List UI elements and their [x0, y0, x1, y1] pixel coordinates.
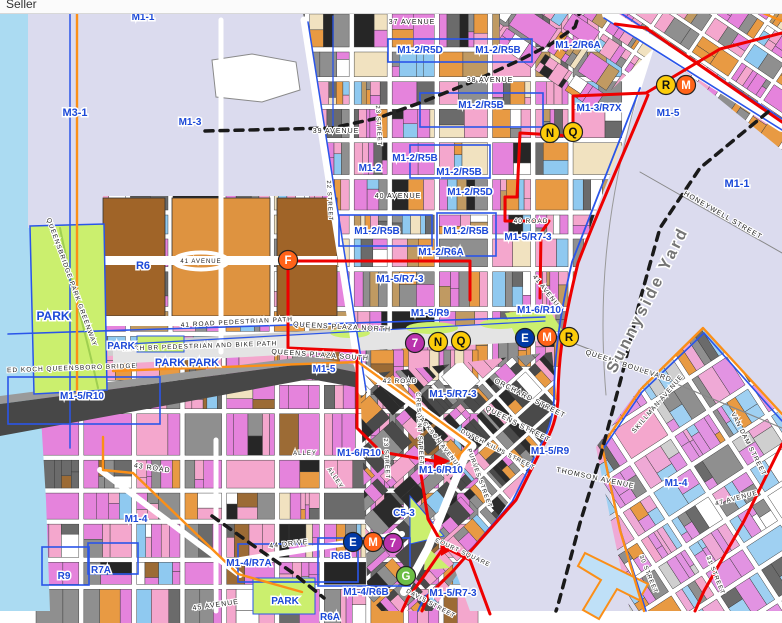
zone-label: R6A	[320, 612, 340, 623]
svg-text:E: E	[349, 537, 357, 549]
subway-marker-M[interactable]: M	[538, 328, 557, 347]
svg-text:R: R	[565, 332, 574, 344]
subway-marker-N[interactable]: N	[541, 124, 560, 143]
zone-label: M1-5/R9	[531, 446, 570, 457]
zone-label: M1-2	[359, 163, 382, 174]
zone-label: M1-5/R10	[60, 391, 104, 402]
zone-label: M3-1	[62, 107, 87, 119]
zone-label: C5-3	[393, 508, 415, 519]
subway-marker-Q[interactable]: Q	[564, 123, 583, 142]
street-label: 38 AVENUE	[467, 77, 514, 84]
svg-text:E: E	[521, 333, 529, 345]
svg-text:7: 7	[412, 338, 418, 350]
street-label: 42 ROAD	[383, 378, 418, 385]
street-label: 41 AVENUE	[180, 259, 221, 265]
street-label: 40 ROAD	[514, 218, 549, 225]
zone-label: M1-2/R5B	[436, 167, 482, 178]
zone-label: M1-5/R7-3	[504, 232, 552, 243]
zone-label: M1-4	[125, 514, 148, 525]
svg-text:7: 7	[390, 538, 396, 550]
zone-label: M1-6/R10	[337, 448, 381, 459]
subway-marker-E[interactable]: E	[516, 329, 535, 348]
top-bar: Seller	[0, 0, 782, 14]
subway-marker-E[interactable]: E	[344, 533, 363, 552]
svg-text:M: M	[542, 332, 552, 344]
svg-text:Q: Q	[569, 127, 578, 139]
street-label: ALLEY	[293, 451, 317, 457]
svg-text:M: M	[681, 80, 691, 92]
zone-label: M1-2/R5D	[447, 187, 493, 198]
top-bar-label: Seller	[6, 0, 37, 11]
subway-marker-R[interactable]: R	[657, 76, 676, 95]
zone-label: M1-3	[179, 117, 202, 128]
subway-marker-G[interactable]: G	[397, 567, 416, 586]
zone-label: M1-6/R10	[517, 305, 561, 316]
zone-label: M1-4	[665, 478, 688, 489]
subway-marker-N[interactable]: N	[429, 333, 448, 352]
zone-label: PARK	[36, 309, 69, 323]
zone-label: M1-5/R9	[411, 308, 450, 319]
zone-label: M1-5	[313, 364, 336, 375]
zone-label: PARK	[271, 596, 299, 607]
zone-label: PARK	[107, 341, 135, 352]
zone-label: M1-4/R6B	[343, 587, 389, 598]
zone-label: M1-5/R7-3	[429, 389, 477, 400]
subway-marker-F[interactable]: F	[279, 251, 298, 270]
zoning-map-canvas[interactable]: 37 AVENUE38 AVENUE39 AVENUE40 AVENUE41 A…	[0, 0, 782, 623]
zone-label: M1-5	[657, 108, 680, 119]
zone-label: PARK	[155, 357, 185, 369]
subway-marker-M[interactable]: M	[364, 533, 383, 552]
zone-label: R6B	[331, 551, 351, 562]
zone-label: M1-5/R7-3	[376, 274, 424, 285]
zone-label: R6	[136, 260, 150, 272]
svg-text:R: R	[662, 80, 671, 92]
zone-label: M1-2/R5B	[475, 45, 521, 56]
zone-label: M1-3/R7X	[576, 103, 621, 114]
svg-text:N: N	[546, 128, 554, 140]
subway-marker-R[interactable]: R	[560, 328, 579, 347]
subway-marker-7[interactable]: 7	[384, 534, 403, 553]
zone-label: M1-2/R5B	[392, 153, 438, 164]
zone-label: PARK	[189, 357, 219, 369]
zone-label: R7A	[91, 565, 111, 576]
subway-marker-Q[interactable]: Q	[452, 332, 471, 351]
subway-marker-M[interactable]: M	[677, 76, 696, 95]
zone-label: M1-6/R10	[419, 465, 463, 476]
street-label: 40 AVENUE	[375, 193, 422, 200]
zone-label: M1-2/R5B	[458, 100, 504, 111]
zone-label: M1-2/R6A	[555, 40, 601, 51]
subway-marker-7[interactable]: 7	[406, 334, 425, 353]
street-label: 37 AVENUE	[389, 19, 436, 26]
zoning-map-screen: 37 AVENUE38 AVENUE39 AVENUE40 AVENUE41 A…	[0, 0, 782, 623]
zone-label: R9	[58, 571, 71, 582]
street-label: 39 AVENUE	[313, 128, 360, 135]
svg-text:Q: Q	[457, 336, 466, 348]
zone-label: M1-5/R7-3	[429, 588, 477, 599]
zone-label: M1-4/R7A	[226, 558, 272, 569]
zone-label: M1-1	[724, 178, 749, 190]
zone-label: M1-2/R5B	[354, 226, 400, 237]
zone-label: M1-2/R6A	[418, 247, 464, 258]
svg-text:N: N	[434, 337, 442, 349]
zone-label: M1-2/R5D	[397, 45, 443, 56]
svg-text:F: F	[284, 255, 291, 267]
svg-text:M: M	[368, 537, 378, 549]
zone-label: M1-2/R5B	[443, 226, 489, 237]
svg-text:G: G	[402, 571, 411, 583]
